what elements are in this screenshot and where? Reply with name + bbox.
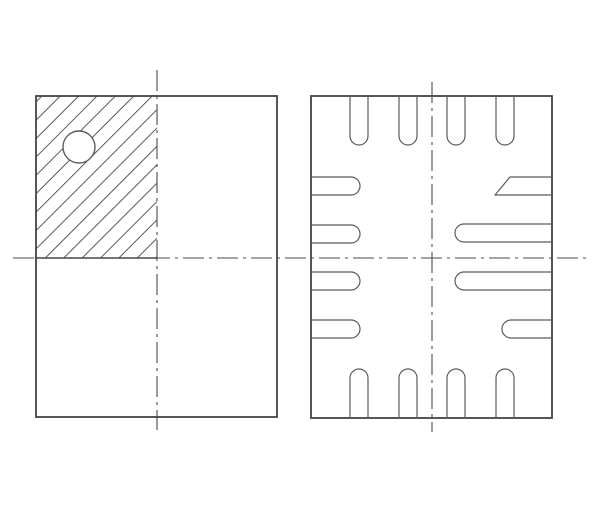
drawing-svg [0,0,600,514]
pin1-indicator-circle [63,131,95,163]
package-drawing [0,0,600,514]
pin1-quadrant-hatch [36,96,157,258]
